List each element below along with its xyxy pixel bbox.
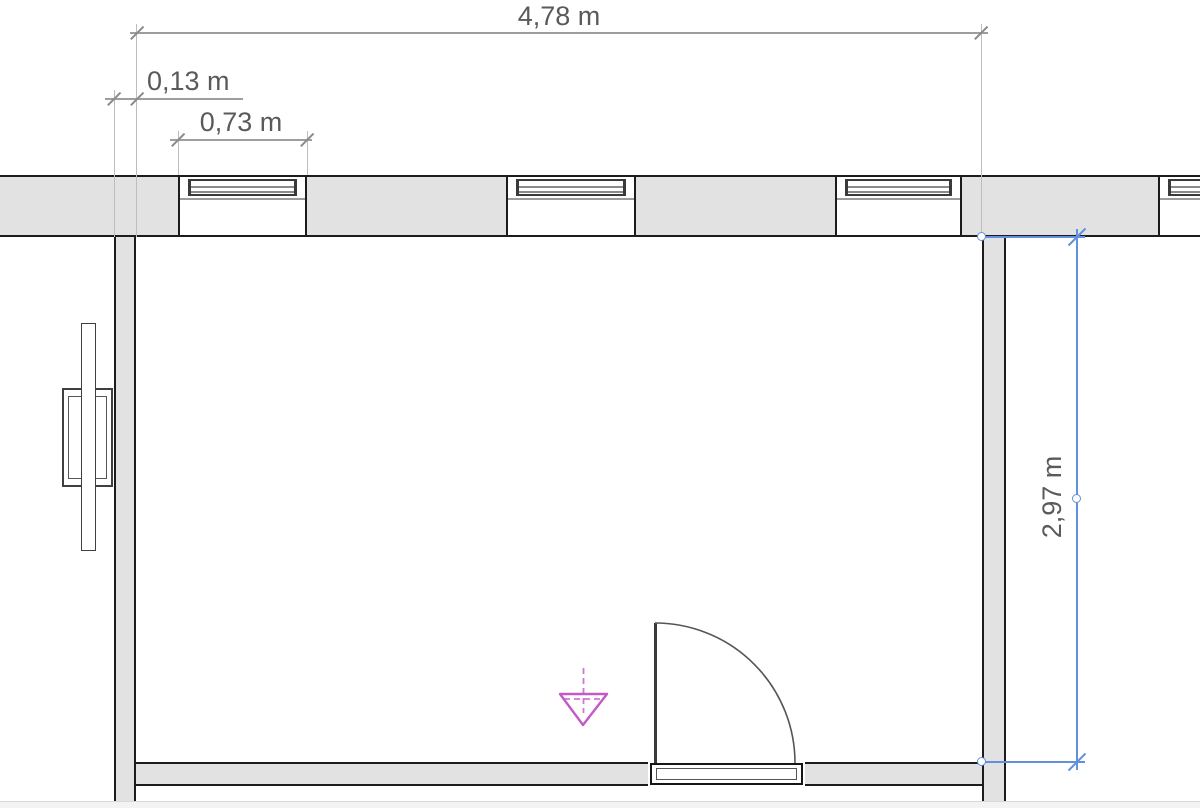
window-frame (845, 179, 952, 196)
furniture-panel[interactable] (81, 323, 96, 551)
dimension-line (105, 98, 243, 100)
window-sill-line (180, 198, 305, 200)
window-frame (1168, 179, 1200, 196)
selection-handle-top[interactable] (977, 232, 986, 241)
floor-plan-canvas[interactable]: 4,78 m 0,13 m 0,73 m 2,97 m (0, 0, 1200, 808)
left-wall[interactable] (114, 237, 136, 808)
window-2[interactable] (506, 177, 636, 235)
window-frame (188, 179, 297, 196)
selected-extension-line (982, 761, 1085, 763)
window-sill-line (837, 198, 960, 200)
dimension-room-depth-label: 2,97 m (1038, 456, 1068, 539)
right-wall[interactable] (982, 237, 1006, 808)
window-1[interactable] (178, 177, 307, 235)
door-threshold-inner (656, 768, 797, 780)
window-4[interactable] (1158, 177, 1200, 235)
selected-extension-line (982, 236, 1085, 238)
extension-line (136, 24, 137, 237)
extension-line (114, 90, 115, 237)
selection-handle-bottom[interactable] (977, 757, 986, 766)
extension-line (981, 24, 982, 237)
dimension-wall-offset-label: 0,13 m (147, 67, 230, 97)
window-frame (516, 179, 626, 196)
door-leaf[interactable] (654, 623, 657, 763)
dimension-line (130, 32, 988, 34)
window-pane-line (519, 191, 623, 193)
bottom-wall-left-segment[interactable] (136, 762, 648, 786)
camera-viewpoint-icon[interactable] (560, 668, 607, 725)
window-pane-line (519, 186, 623, 188)
page-edge-band (0, 801, 1200, 808)
window-pane-line (191, 191, 294, 193)
top-wall[interactable] (0, 175, 1200, 237)
window-pane-line (1171, 186, 1200, 188)
window-pane-line (848, 186, 949, 188)
window-pane-line (1171, 191, 1200, 193)
window-3[interactable] (835, 177, 962, 235)
window-pane-line (191, 186, 294, 188)
door-swing-arc (655, 623, 795, 763)
selection-handle-middle[interactable] (1072, 494, 1081, 503)
dimension-window-width-label: 0,73 m (170, 108, 312, 138)
dimension-line (170, 139, 312, 141)
window-pane-line (848, 191, 949, 193)
window-sill-line (1160, 198, 1200, 200)
dimension-room-width-label: 4,78 m (137, 2, 981, 32)
bottom-wall-right-segment[interactable] (805, 762, 982, 786)
window-sill-line (508, 198, 634, 200)
